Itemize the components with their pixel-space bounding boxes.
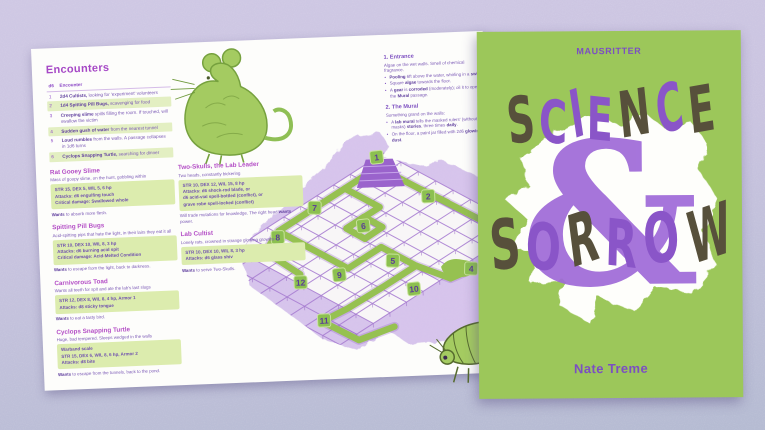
title-letter: E: [587, 84, 611, 156]
room-bullets: A lab mural tells the masked rulers' (wi…: [386, 116, 485, 144]
text: .: [401, 137, 402, 142]
map-token-11: 11: [317, 314, 331, 328]
text: power.: [180, 218, 193, 224]
room-section: 2. The MuralSomething grand on the walls…: [386, 101, 485, 143]
stat-section: Cyclops Snapping TurtleHuge, bad tempere…: [56, 324, 182, 377]
token-number: 11: [319, 315, 329, 325]
stat-block: STR 15, DEX 5, WIL 5, 6 hpAttacks: d6 en…: [50, 180, 175, 210]
zine-cover: MAUSRITTER & SCIENCE SORROW Nate Treme: [477, 30, 744, 399]
stat-block: STR 10, DEX 10, WIL 8, 3 hpAttacks: d6 g…: [181, 242, 306, 266]
map-token-2: 2: [421, 189, 435, 203]
bold-text: Wants: [182, 268, 195, 274]
text: to escape from the light, back to darkne…: [67, 264, 151, 272]
bold-text: Cyclops Snapping Turtle,: [62, 151, 117, 158]
token-number: 5: [390, 256, 395, 266]
text: towards the floor.: [416, 78, 451, 84]
text: .: [456, 122, 457, 127]
text: to escape from the tunnels, back to the …: [71, 368, 160, 377]
header-encounter-column: Encounter: [59, 82, 82, 89]
text: Warband scale: [61, 346, 93, 352]
zine-spread: Encounters d6 Encounter 12d4 Cultists, l…: [31, 31, 496, 391]
bold-text: Loud rumbles: [62, 137, 93, 143]
text: Square: [390, 80, 406, 86]
text: Attacks: d8 bite: [62, 359, 96, 365]
bold-text: stories: [407, 124, 422, 130]
bold-text: Pooling: [389, 74, 405, 80]
text: to eat a tasty bird.: [69, 315, 105, 321]
token-number: 12: [296, 277, 306, 287]
title-letter: O: [525, 209, 560, 287]
title-letter: W: [683, 188, 733, 282]
rat-body: [183, 61, 268, 156]
creature-wants: Wants to absorb more flesh.: [52, 207, 176, 217]
npc-column: Two-Skulls, the Lab LeaderTwo heads, con…: [177, 152, 306, 273]
token-number: 4: [469, 264, 474, 274]
stat-section: Two-Skulls, the Lab LeaderTwo heads, con…: [178, 159, 304, 224]
rooms-column: 1. EntranceAlgae on the wet walls. Smell…: [384, 51, 486, 149]
map-token-1: 1: [369, 150, 383, 164]
bold-text: Wants: [56, 316, 69, 322]
text: passage.: [409, 92, 428, 98]
bold-text: Wants: [54, 267, 67, 273]
map-token-10: 10: [407, 282, 421, 296]
text: , three times: [421, 123, 447, 129]
stat-block: Warband scaleSTR 15, DEX 6, WIL 8, 6 hp,…: [57, 340, 182, 370]
token-number: 2: [426, 191, 431, 201]
title-letter: C: [651, 67, 686, 151]
stat-section: Spitting Pill BugsAcid-spitting pips tha…: [52, 219, 178, 272]
encounter-die-number: 5: [51, 138, 62, 150]
stat-block: STR 12, DEX 8, WIL 8, 4 hp, Armor 1Attac…: [55, 291, 180, 315]
header-die-column: d6: [48, 83, 59, 89]
text: STR 10, DEX 10, WIL 8, 3 hp: [185, 247, 245, 254]
text: scavenging for food: [109, 100, 151, 107]
mausritter-logo: MAUSRITTER: [477, 45, 741, 57]
title-letter: I: [565, 75, 587, 154]
stat-section: Rat Gooey SlimeMass of goopy slime, on t…: [50, 164, 176, 217]
text: looking for 'experiment' volunteers: [87, 90, 158, 98]
author-name: Nate Treme: [479, 360, 743, 377]
encounters-title: Encounters: [46, 59, 170, 76]
title-letter: N: [615, 75, 652, 154]
map-token-9: 9: [332, 268, 346, 282]
cover-title-science: SCIENCE: [484, 80, 735, 152]
bold-text: Mural: [397, 93, 409, 98]
text: Will trade mutations for knowledge. The …: [180, 210, 279, 219]
stat-section: Carnivorous ToadWants all teeth for spit…: [54, 275, 180, 322]
bold-text: Wants: [52, 212, 65, 218]
text: searching for dinner: [117, 150, 159, 157]
bold-text: 2d4 Cultists,: [60, 93, 88, 99]
monster-sections: Rat Gooey SlimeMass of goopy slime, on t…: [50, 164, 182, 377]
title-letter: S: [487, 204, 522, 287]
rat-illustration: [153, 44, 300, 168]
bold-text: wants: [279, 209, 292, 214]
encounter-die-number: 3: [50, 113, 61, 125]
bold-text: Wants: [58, 371, 71, 377]
room-section: 1. EntranceAlgae on the wet walls. Smell…: [384, 51, 484, 99]
creature-wants: Wants to escape from the tunnels, back t…: [58, 367, 182, 377]
room-bullets: Pooling 6ft above the water, whirling in…: [384, 70, 483, 99]
encounter-text: Cyclops Snapping Turtle, searching for d…: [62, 150, 159, 160]
text: to absorb more flesh.: [65, 210, 108, 217]
bold-text: gear: [394, 87, 403, 92]
encounter-die-number: 6: [51, 154, 62, 160]
bold-text: Sudden gush of water: [61, 127, 109, 134]
encounter-die-number: 4: [50, 129, 61, 135]
creature-wants: Will trade mutations for knowledge. The …: [180, 209, 304, 225]
encounter-die-number: 1: [49, 94, 60, 100]
title-letter: O: [640, 197, 680, 281]
bold-text: algae: [405, 80, 416, 85]
map-token-7: 7: [308, 201, 321, 214]
encounter-die-number: 2: [49, 103, 60, 109]
map-token-12: 12: [294, 276, 308, 290]
title-letter: C: [539, 87, 565, 159]
text: from the nearest tunnel: [109, 125, 158, 132]
stat-block: STR 10, DEX 10, WIL 8, 3 hpAttacks: d6 b…: [53, 235, 178, 265]
bold-text: daily: [446, 122, 456, 127]
text: to serve Two-Skulls.: [195, 266, 236, 273]
rat-tail: [264, 109, 292, 140]
text: Attacks: d8 sticky tongue: [59, 302, 114, 309]
rat-eye: [207, 76, 210, 79]
stat-section: Lab CultistLonely rats, crowned in stran…: [180, 226, 306, 273]
bold-text: 1d4 Spitting Pill Bugs,: [60, 101, 109, 108]
title-letter: R: [604, 206, 635, 284]
stat-block: STR 10, DEX 12, WIL 15, 8 hpAttacks: d6 …: [178, 175, 303, 211]
map-token-6: 6: [356, 219, 370, 233]
cover-title-sorrow: SORROW: [485, 206, 735, 277]
token-number: 7: [312, 203, 317, 213]
title-letter: S: [503, 82, 535, 160]
map-token-5: 5: [386, 254, 399, 267]
map-token-4: 4: [464, 262, 477, 275]
text: Attacks: d6 glass shiv: [185, 254, 232, 261]
text: Algae on the wet walls. Smell of chemica…: [384, 59, 465, 73]
title-letter: E: [685, 71, 716, 149]
zine-mockup-scene: Encounters d6 Encounter 12d4 Cultists, l…: [0, 0, 765, 430]
token-number: 10: [409, 284, 420, 295]
